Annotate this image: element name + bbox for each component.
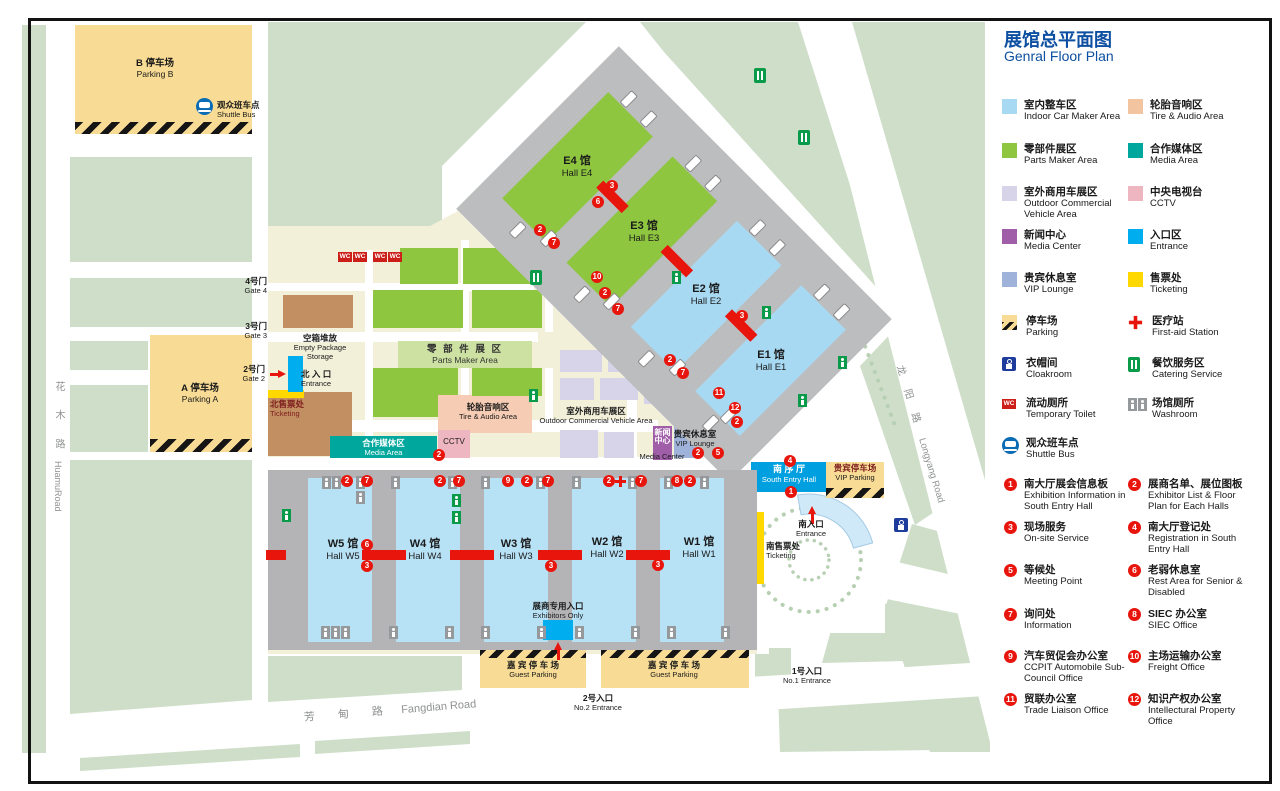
marker-badge: 6 (1128, 564, 1141, 577)
zh-text: 3号门 (215, 321, 267, 331)
label-media-area: 合作媒体区 Media Area (330, 438, 437, 457)
zh-text: 北 入 口 (301, 369, 345, 379)
washroom-icon (572, 476, 581, 489)
marker-badge: 3 (1004, 521, 1017, 534)
label-vip-parking: 贵宾停车场 VIP Parking (824, 463, 886, 482)
color-swatch (1002, 229, 1017, 244)
label-media-center-en: Media Center (626, 452, 698, 461)
en-text: Hall W4 (393, 551, 457, 562)
catering-icon (530, 270, 542, 285)
label-guest-parking-2: 嘉 宾 停 车 场 Guest Parking (624, 660, 724, 679)
en-text: Parts Maker Area (398, 355, 532, 365)
marker-badge: 8 (1128, 608, 1141, 621)
label-cctv: CCTV (438, 437, 470, 447)
en-text: Freight Office (1148, 663, 1222, 674)
en-text: Hall W1 (667, 549, 731, 560)
map-marker: 2 (433, 449, 445, 461)
label-north-entrance: 北 入 口 Entrance (301, 369, 345, 388)
color-swatch (1128, 143, 1143, 158)
label-parts-maker-band: 零 部 件 展 区 Parts Maker Area (398, 344, 532, 366)
wc-icon: WC (1002, 399, 1016, 409)
legend-num-9: 9 汽车贸促会办公室CCPIT Automobile Sub-Council O… (1004, 650, 1132, 685)
map-marker: 2 (341, 475, 353, 487)
en-text: Entrance (301, 379, 345, 388)
marker-badge: 4 (1128, 521, 1141, 534)
en-text: VIP Parking (824, 473, 886, 482)
truck-icon (573, 285, 591, 303)
legend-item-indoor-car: 室内整车区Indoor Car Maker Area (1002, 99, 1130, 123)
zh-text: 贵宾休息室 (664, 429, 726, 439)
map-marker: 1 (785, 486, 797, 498)
en-text: Exhibitors Only (520, 611, 596, 620)
parking-icon (1002, 315, 1017, 330)
parking-a-hazard-stripe (150, 439, 252, 452)
en-text: Gate 4 (215, 286, 267, 295)
truck-icon (748, 219, 766, 237)
en-text: Shuttle Bus (1026, 450, 1079, 461)
en-text: Exhibitor List & Floor Plan for Each Hal… (1148, 491, 1256, 513)
exhibitors-arrow-icon (554, 642, 562, 650)
label-hall-w2: W2 馆 Hall W2 (575, 536, 639, 561)
label-hall-e4: E4 馆 Hall E4 (547, 155, 607, 180)
en-text: SIEC Office (1148, 621, 1207, 632)
washroom-icon (1128, 398, 1137, 411)
zh-text: 花 木 路 (53, 381, 64, 457)
marker-badge: 10 (1128, 650, 1141, 663)
label-no1-entrance: 1号入口 No.1 Entrance (778, 666, 836, 685)
en-text: Gate 3 (215, 331, 267, 340)
legend-item-cloakroom: 衣帽间Cloakroom (1002, 357, 1130, 381)
washroom-icon (452, 494, 461, 507)
en-text: Guest Parking (624, 670, 724, 679)
legend-item-vip-lounge: 贵宾休息室VIP Lounge (1002, 272, 1130, 296)
zh-text: 观众班车点 (217, 100, 277, 110)
zh-text: W4 馆 (393, 538, 457, 551)
truck-icon (813, 283, 831, 301)
washroom-icon (341, 626, 350, 639)
en-text: Media Center (626, 452, 698, 461)
zh-text: E3 馆 (614, 220, 674, 233)
legend-num-2: 2 展商名单、展位图板Exhibitor List & Floor Plan f… (1128, 478, 1256, 513)
en-text: Parking B (95, 69, 215, 79)
wc-icon: WC (388, 252, 402, 262)
en-text: Hall E4 (547, 168, 607, 179)
cloakroom-icon (1002, 357, 1016, 371)
label-hall-w3: W3 馆 Hall W3 (484, 538, 548, 563)
map-marker: 2 (534, 224, 546, 236)
label-guest-parking-1: 嘉 宾 停 车 场 Guest Parking (486, 660, 580, 679)
truck-icon (704, 174, 722, 192)
washroom-icon (798, 394, 807, 407)
en-text: Exhibition Information in South Entry Ha… (1024, 491, 1132, 513)
color-swatch (1128, 272, 1143, 287)
washroom-icon (321, 626, 330, 639)
label-tire-audio: 轮胎音响区 Tire & Audio Area (446, 402, 530, 421)
legend-item-cctv: 中央电视台CCTV (1128, 186, 1256, 210)
marker-badge: 11 (1004, 693, 1017, 706)
map-marker: 3 (545, 560, 557, 572)
zh-text: W1 馆 (667, 536, 731, 549)
map-marker: 7 (361, 475, 373, 487)
zh-text: 室外商用车展区 (536, 406, 656, 416)
map-marker: 2 (692, 447, 704, 459)
washroom-icon (356, 491, 365, 504)
legend-num-11: 11 贸联办公室Trade Liaison Office (1004, 693, 1132, 717)
truck-icon (620, 90, 638, 108)
legend-item-tire-audio: 轮胎音响区Tire & Audio Area (1128, 99, 1256, 123)
cloakroom-icon (894, 518, 908, 532)
en-text: Outdoor Commercial Vehicle Area (1024, 199, 1130, 221)
label-vip-lounge: 贵宾休息室 VIP Lounge (664, 429, 726, 448)
en-text: Rest Area for Senior & Disabled (1148, 577, 1256, 599)
zh-text: E2 馆 (676, 283, 736, 296)
legend-item-parking: 停车场Parking (1002, 315, 1130, 339)
map-marker: 6 (361, 539, 373, 551)
marker-badge: 12 (1128, 693, 1141, 706)
en-text: VIP Lounge (1024, 285, 1077, 296)
map-marker: 2 (434, 475, 446, 487)
en-text: Parking A (145, 394, 255, 404)
en-text: Gate 2 (213, 374, 265, 383)
en-text: Storage (280, 352, 360, 361)
legend-num-4: 4 南大厅登记处Registration in South Entry Hall (1128, 521, 1256, 556)
map-marker: 2 (599, 287, 611, 299)
legend-num-7: 7 询问处Information (1004, 608, 1132, 632)
legend-num-8: 8 SIEC 办公室SIEC Office (1128, 608, 1256, 632)
en-text: Outdoor Commercial Vehicle Area (536, 416, 656, 425)
washroom-icon (537, 626, 546, 639)
legend-item-entrance: 入口区Entrance (1128, 229, 1256, 253)
en-text: Entrance (1150, 242, 1188, 253)
en-text: CCPIT Automobile Sub-Council Office (1024, 663, 1132, 685)
en-text: Parts Maker Area (1024, 156, 1097, 167)
map-marker: 3 (361, 560, 373, 572)
washroom-icon (481, 476, 490, 489)
zh-text: 零 部 件 展 区 (398, 344, 532, 355)
washroom-icon (282, 509, 291, 522)
washroom-icon (667, 626, 676, 639)
shuttle-icon (1002, 437, 1019, 454)
en-text: Ticketing (270, 409, 330, 418)
outdoor-cv-block (560, 350, 602, 372)
map-marker: 7 (453, 475, 465, 487)
parts-hall (373, 290, 463, 328)
legend-num-12: 12 知识产权办公室Intellectural Property Office (1128, 693, 1256, 728)
zh-text: E1 馆 (741, 349, 801, 362)
en-text: CCTV (1150, 199, 1203, 210)
label-gate3: 3号门 Gate 3 (215, 321, 267, 340)
parking-b-hazard-stripe (75, 122, 252, 134)
truck-icon (639, 110, 657, 128)
label-south-ticketing: 南售票处 Ticketing (766, 541, 816, 560)
en-text: Washroom (1152, 410, 1198, 421)
legend-item-washroom: 场馆厕所Washroom (1128, 397, 1256, 421)
map-marker: 8 (671, 475, 683, 487)
zh-text: 北售票处 (270, 399, 330, 409)
washroom-icon (631, 626, 640, 639)
zh-text: 展商专用入口 (520, 601, 596, 611)
marker-badge: 5 (1004, 564, 1017, 577)
map-marker: 10 (591, 271, 603, 283)
en-text: Intellectural Property Office (1148, 706, 1256, 728)
legend-item-catering: 餐饮服务区Catering Service (1128, 357, 1256, 381)
label-outdoor-cv: 室外商用车展区 Outdoor Commercial Vehicle Area (536, 406, 656, 425)
en-text: Registration in South Entry Hall (1148, 534, 1256, 556)
color-swatch (1002, 272, 1017, 287)
label-empty-storage: 空箱堆放 Empty Package Storage (280, 333, 360, 361)
label-hall-e3: E3 馆 Hall E3 (614, 220, 674, 245)
label-huamu-road: 花 木 路 HuamuRoad (48, 366, 68, 526)
en-text: No.2 Entrance (568, 703, 628, 712)
washroom-icon (391, 476, 400, 489)
outdoor-cv-block (560, 430, 598, 458)
color-swatch (1128, 186, 1143, 201)
washroom-icon (838, 356, 847, 369)
legend-num-3: 3 现场服务On-site Service (1004, 521, 1132, 545)
first-aid-icon (1129, 316, 1142, 329)
gate2-arrow-icon (278, 370, 286, 378)
color-swatch (1002, 143, 1017, 158)
en-text: Hall W2 (575, 549, 639, 560)
en-text: No.1 Entrance (778, 676, 836, 685)
outdoor-cv-block (560, 378, 594, 400)
map-marker: 11 (713, 387, 725, 399)
zh-text: W3 馆 (484, 538, 548, 551)
catering-icon (798, 130, 810, 145)
zh-text: A 停车场 (145, 383, 255, 394)
map-marker: 3 (736, 310, 748, 322)
map-marker: 7 (542, 475, 554, 487)
en-text: Information (1024, 621, 1072, 632)
map-marker: 3 (606, 180, 618, 192)
color-swatch (1002, 99, 1017, 114)
label-gate2: 2号门 Gate 2 (213, 364, 265, 383)
label-hall-e2: E2 馆 Hall E2 (676, 283, 736, 308)
washroom-icon (700, 476, 709, 489)
zh-text: W2 馆 (575, 536, 639, 549)
legend-item-first-aid: 医疗站First-aid Station (1128, 315, 1256, 339)
map-marker: 3 (652, 559, 664, 571)
en-text: On-site Service (1024, 534, 1089, 545)
zh-text: 合作媒体区 (330, 438, 437, 448)
en-text: Ticketing (1150, 285, 1188, 296)
washroom-icon (389, 626, 398, 639)
washroom-icon (331, 626, 340, 639)
washroom-icon (332, 476, 341, 489)
wc-icon: WC (353, 252, 367, 262)
en-text: Media Center (1024, 242, 1081, 253)
label-hall-w1: W1 馆 Hall W1 (667, 536, 731, 561)
zh-text: 南售票处 (766, 541, 816, 551)
map-marker: 12 (729, 402, 741, 414)
marker-badge: 1 (1004, 478, 1017, 491)
en-text: Empty Package (280, 343, 360, 352)
color-swatch (1128, 99, 1143, 114)
label-north-ticketing: 北售票处 Ticketing (270, 399, 330, 418)
en-text: CCTV (438, 437, 470, 447)
truck-icon (768, 239, 786, 257)
label-shuttle-nw: 观众班车点 Shuttle Bus (217, 100, 277, 119)
wc-icon: WC (338, 252, 352, 262)
en-text: Ticketing (766, 551, 816, 560)
map-marker: 2 (521, 475, 533, 487)
truck-icon (684, 154, 702, 172)
label-parking-a: A 停车场 Parking A (145, 383, 255, 405)
washroom-icon (1138, 398, 1147, 411)
en-text: Meeting Point (1024, 577, 1082, 588)
map-marker: 7 (548, 237, 560, 249)
en-text: Hall E2 (676, 296, 736, 307)
vip-parking-hazard-stripe (826, 488, 884, 498)
en-text: Trade Liaison Office (1024, 706, 1109, 717)
zh-text: 南入口 (784, 519, 838, 529)
zh-text: B 停车场 (95, 58, 215, 69)
map-marker: 7 (677, 367, 689, 379)
label-hall-e1: E1 馆 Hall E1 (741, 349, 801, 374)
legend-num-10: 10 主场运输办公室Freight Office (1128, 650, 1256, 674)
map-marker: 2 (603, 475, 615, 487)
map-marker: 9 (502, 475, 514, 487)
en-text: Hall E3 (614, 233, 674, 244)
label-gate4: 4号门 Gate 4 (215, 276, 267, 295)
legend-num-1: 1 南大厅展会信息板Exhibition Information in Sout… (1004, 478, 1132, 513)
truck-icon (509, 221, 527, 239)
parts-hall (472, 290, 542, 328)
label-hall-w4: W4 馆 Hall W4 (393, 538, 457, 563)
parts-hall (400, 248, 458, 284)
south-entrance-arrow-icon (808, 506, 816, 514)
catering-icon (1128, 357, 1140, 372)
map-marker: 5 (712, 447, 724, 459)
map-marker: 7 (635, 475, 647, 487)
zh-text: 4号门 (215, 276, 267, 286)
en-text: South Entry Hall (751, 475, 827, 484)
en-text: First-aid Station (1152, 328, 1219, 339)
zh-text: 空箱堆放 (280, 333, 360, 343)
zh-text: 嘉 宾 停 车 场 (486, 660, 580, 670)
washroom-icon (452, 511, 461, 524)
washroom-icon (481, 626, 490, 639)
empty-package-storage-north (283, 295, 353, 328)
en-text: Shuttle Bus (217, 110, 277, 119)
label-exhibitors-only: 展商专用入口 Exhibitors Only (520, 601, 596, 620)
washroom-icon (762, 306, 771, 319)
legend-item-outdoor-cv: 室外商用车展区Outdoor Commercial Vehicle Area (1002, 186, 1130, 221)
en-text: Parking (1026, 328, 1058, 339)
truck-icon (832, 303, 850, 321)
catering-icon (754, 68, 766, 83)
map-marker: 2 (664, 354, 676, 366)
en-text: Hall E1 (741, 362, 801, 373)
marker-badge: 2 (1128, 478, 1141, 491)
marker-badge: 7 (1004, 608, 1017, 621)
zh-text: 2号入口 (568, 693, 628, 703)
map-marker: 4 (784, 455, 796, 467)
legend-item-temporary-toilet: WC 流动厕所Temporary Toilet (1002, 397, 1130, 421)
legend-item-shuttle-bus: 观众班车点Shuttle Bus (1002, 437, 1130, 461)
exhibitors-entrance-block (543, 620, 573, 640)
legend-num-5: 5 等候处Meeting Point (1004, 564, 1132, 588)
page-subtitle: Genral Floor Plan (1004, 48, 1114, 64)
en-text: Temporary Toilet (1026, 410, 1096, 421)
floor-plan-map: WC WC WC WC B 停车场 Parking B (0, 0, 1280, 791)
zh-text: 1号入口 (778, 666, 836, 676)
zh-text: E4 馆 (547, 155, 607, 168)
legend-item-parts-maker: 零部件展区Parts Maker Area (1002, 143, 1130, 167)
first-aid-icon (615, 476, 626, 487)
marker-badge: 9 (1004, 650, 1017, 663)
en-text: HuamuRoad (53, 461, 63, 512)
legend-item-media-area: 合作媒体区Media Area (1128, 143, 1256, 167)
en-text: Tire & Audio Area (446, 412, 530, 421)
map-marker: 7 (612, 303, 624, 315)
map-marker: 2 (731, 416, 743, 428)
zh-text: 轮胎音响区 (446, 402, 530, 412)
legend-num-6: 6 老弱休息室Rest Area for Senior & Disabled (1128, 564, 1256, 599)
en-text: Indoor Car Maker Area (1024, 112, 1120, 123)
legend-item-media-center: 新闻中心Media Center (1002, 229, 1130, 253)
color-swatch (1002, 186, 1017, 201)
washroom-icon (322, 476, 331, 489)
washroom-icon (575, 626, 584, 639)
en-text: Guest Parking (486, 670, 580, 679)
legend-item-ticketing: 售票处Ticketing (1128, 272, 1256, 296)
washroom-icon (529, 389, 538, 402)
washroom-icon (721, 626, 730, 639)
connector-bar (266, 550, 286, 560)
map-marker: 2 (684, 475, 696, 487)
zh-text: 2号门 (213, 364, 265, 374)
label-no2-entrance: 2号入口 No.2 Entrance (568, 693, 628, 712)
en-text: Tire & Audio Area (1150, 112, 1224, 123)
shuttle-bus-icon (196, 98, 213, 115)
zh-text: 贵宾停车场 (824, 463, 886, 473)
en-text: Cloakroom (1026, 370, 1072, 381)
en-text: Entrance (784, 529, 838, 538)
en-text: Media Area (330, 448, 437, 457)
label-parking-b: B 停车场 Parking B (95, 58, 215, 80)
map-marker: 6 (592, 196, 604, 208)
truck-icon (637, 350, 655, 368)
en-text: Media Area (1150, 156, 1203, 167)
zh-text: 嘉 宾 停 车 场 (624, 660, 724, 670)
en-text: Catering Service (1152, 370, 1222, 381)
en-text: Hall W3 (484, 551, 548, 562)
color-swatch (1128, 229, 1143, 244)
washroom-icon (445, 626, 454, 639)
wc-icon: WC (373, 252, 387, 262)
label-south-entrance: 南入口 Entrance (784, 519, 838, 538)
